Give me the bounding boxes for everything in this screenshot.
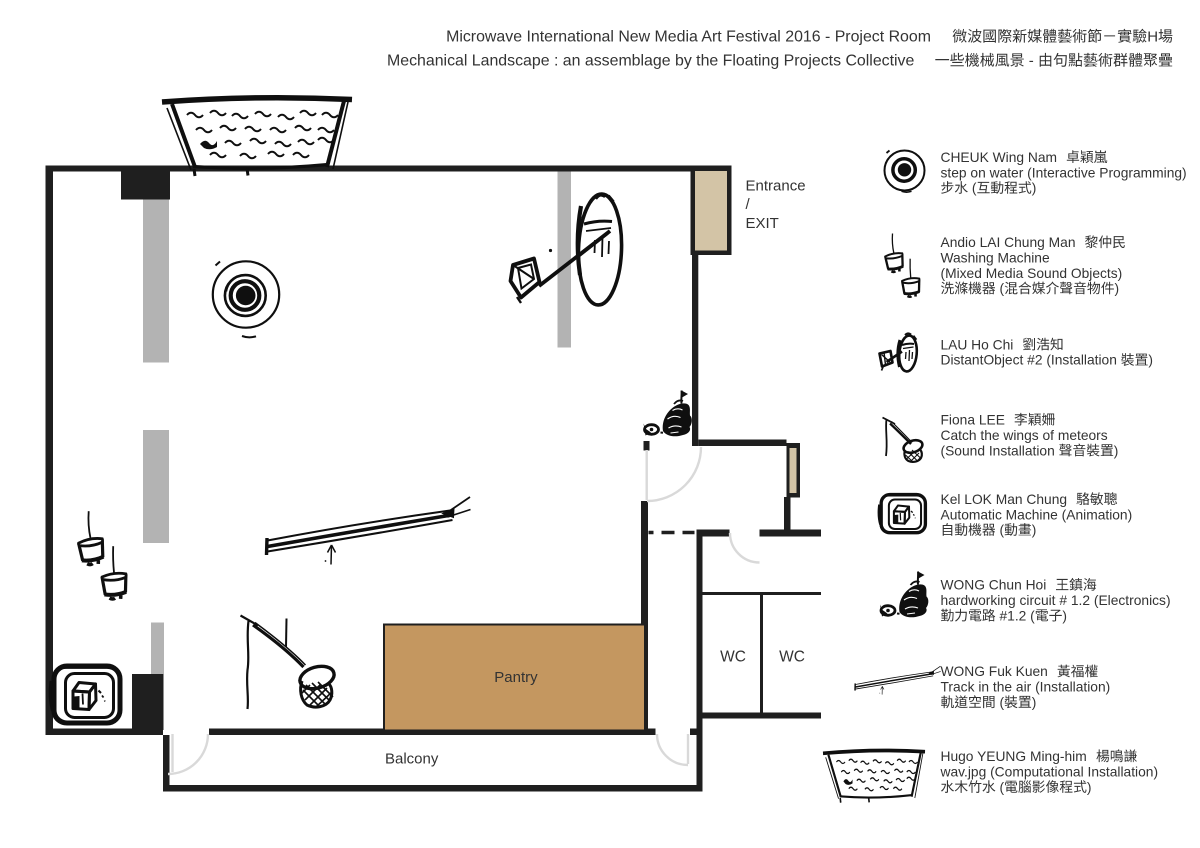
- svg-text:(: (: [1000, 780, 1005, 795]
- svg-text:Kel LOK Man Chung: Kel LOK Man Chung: [941, 492, 1068, 507]
- svg-text:): ): [1087, 780, 1092, 795]
- svg-text:): ): [1114, 443, 1119, 458]
- svg-text:): ): [1148, 353, 1153, 368]
- svg-text:step on water (Interactive Pro: step on water (Interactive Programming): [941, 165, 1187, 180]
- svg-text:WC: WC: [779, 649, 805, 666]
- svg-text:Microwave International New Me: Microwave International New Media Art Fe…: [446, 29, 931, 46]
- svg-text:Balcony: Balcony: [385, 751, 439, 768]
- svg-text:): ): [1032, 695, 1037, 710]
- svg-text:DistantObject #2 (Installation: DistantObject #2 (Installation: [941, 353, 1117, 368]
- svg-text:Catch the wings of meteors: Catch the wings of meteors: [941, 428, 1108, 443]
- svg-text:Entrance: Entrance: [746, 178, 806, 195]
- svg-text:EXIT: EXIT: [746, 215, 779, 232]
- svg-text:-: -: [1029, 53, 1034, 70]
- svg-text:Mechanical Landscape : an asse: Mechanical Landscape : an assemblage by …: [387, 53, 914, 70]
- svg-text:Track in the air (Installation: Track in the air (Installation): [941, 680, 1111, 695]
- svg-text:Hugo YEUNG Ming-him: Hugo YEUNG Ming-him: [941, 749, 1087, 764]
- svg-text:): ): [1115, 281, 1120, 296]
- svg-text:CHEUK Wing Nam: CHEUK Wing Nam: [941, 150, 1058, 165]
- svg-text:(Sound Installation: (Sound Installation: [941, 443, 1055, 458]
- svg-text:): ): [1062, 608, 1067, 623]
- svg-text:(: (: [1000, 281, 1005, 296]
- svg-text:WONG Fuk Kuen: WONG Fuk Kuen: [941, 664, 1048, 679]
- svg-text:WONG Chun Hoi: WONG Chun Hoi: [941, 578, 1047, 593]
- svg-text:wav.jpg (Computational Install: wav.jpg (Computational Installation): [940, 764, 1159, 779]
- svg-text:(: (: [1000, 523, 1005, 538]
- svg-text:Automatic Machine (Animation): Automatic Machine (Animation): [941, 507, 1133, 522]
- svg-text:#1.2 (: #1.2 (: [1000, 608, 1036, 623]
- svg-text:WC: WC: [720, 649, 746, 666]
- svg-text:Fiona LEE: Fiona LEE: [941, 413, 1005, 428]
- svg-text:Washing Machine: Washing Machine: [941, 250, 1050, 265]
- svg-text:H: H: [1147, 29, 1158, 46]
- svg-text:): ): [1032, 181, 1037, 196]
- svg-text:LAU Ho Chi: LAU Ho Chi: [941, 337, 1014, 352]
- svg-text:(: (: [972, 181, 977, 196]
- svg-text:hardworking circuit # 1.2 (Ele: hardworking circuit # 1.2 (Electronics): [941, 593, 1171, 608]
- svg-text:(Mixed Media Sound Objects): (Mixed Media Sound Objects): [941, 266, 1123, 281]
- svg-text:(: (: [1000, 695, 1005, 710]
- svg-text:Andio LAI Chung Man: Andio LAI Chung Man: [941, 235, 1076, 250]
- svg-text:Pantry: Pantry: [494, 669, 538, 686]
- svg-text:): ): [1032, 523, 1037, 538]
